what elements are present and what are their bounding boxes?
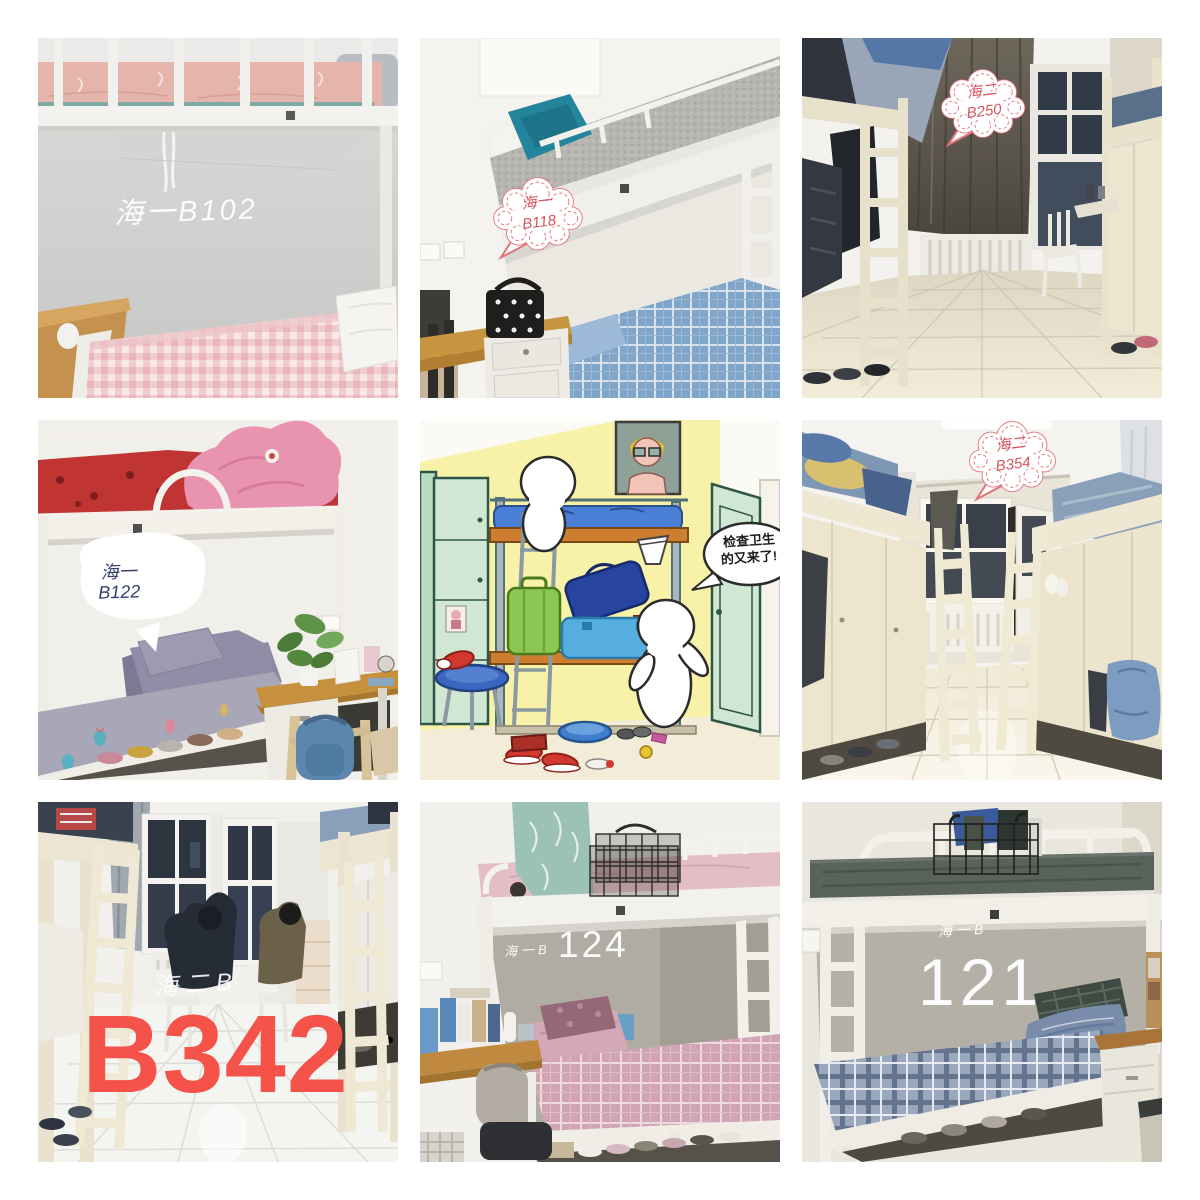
dorm-b354-illustration <box>802 420 1162 780</box>
photo-dorm-b250: 海二 B250 <box>802 38 1162 398</box>
dorm-photo-collage: 海一B102 <box>0 0 1200 1200</box>
photo-dorm-b342: 海二B B342 <box>38 802 398 1162</box>
wall-switch <box>420 962 442 980</box>
photo-dorm-b121: 海一B 121 <box>802 802 1162 1162</box>
cartoon-illustration <box>420 420 780 780</box>
photo-dorm-b118: 海一 B118 <box>420 38 780 398</box>
photo-dorm-b122: 海一 B122 <box>38 420 398 780</box>
photo-dorm-b354: 海二 B354 <box>802 420 1162 780</box>
dorm-b122-illustration <box>38 420 398 780</box>
poster <box>616 422 680 494</box>
dorm-b118-illustration <box>420 38 780 398</box>
dorm-b342-illustration <box>38 802 398 1162</box>
photo-dorm-b102: 海一B102 <box>38 38 398 398</box>
wire-basket <box>590 825 680 896</box>
dorm-b102-illustration <box>38 38 398 398</box>
left-bunk <box>38 802 140 1162</box>
dorm-b124-illustration <box>420 802 780 1162</box>
wall-switch <box>802 930 820 952</box>
cartoon-dorm-inspection: 检查卫生 的又来了! <box>420 420 780 780</box>
photo-dorm-b124: 海一B 124 <box>420 802 780 1162</box>
dorm-b250-illustration <box>802 38 1162 398</box>
dorm-b121-illustration <box>802 802 1162 1162</box>
door <box>712 480 780 736</box>
